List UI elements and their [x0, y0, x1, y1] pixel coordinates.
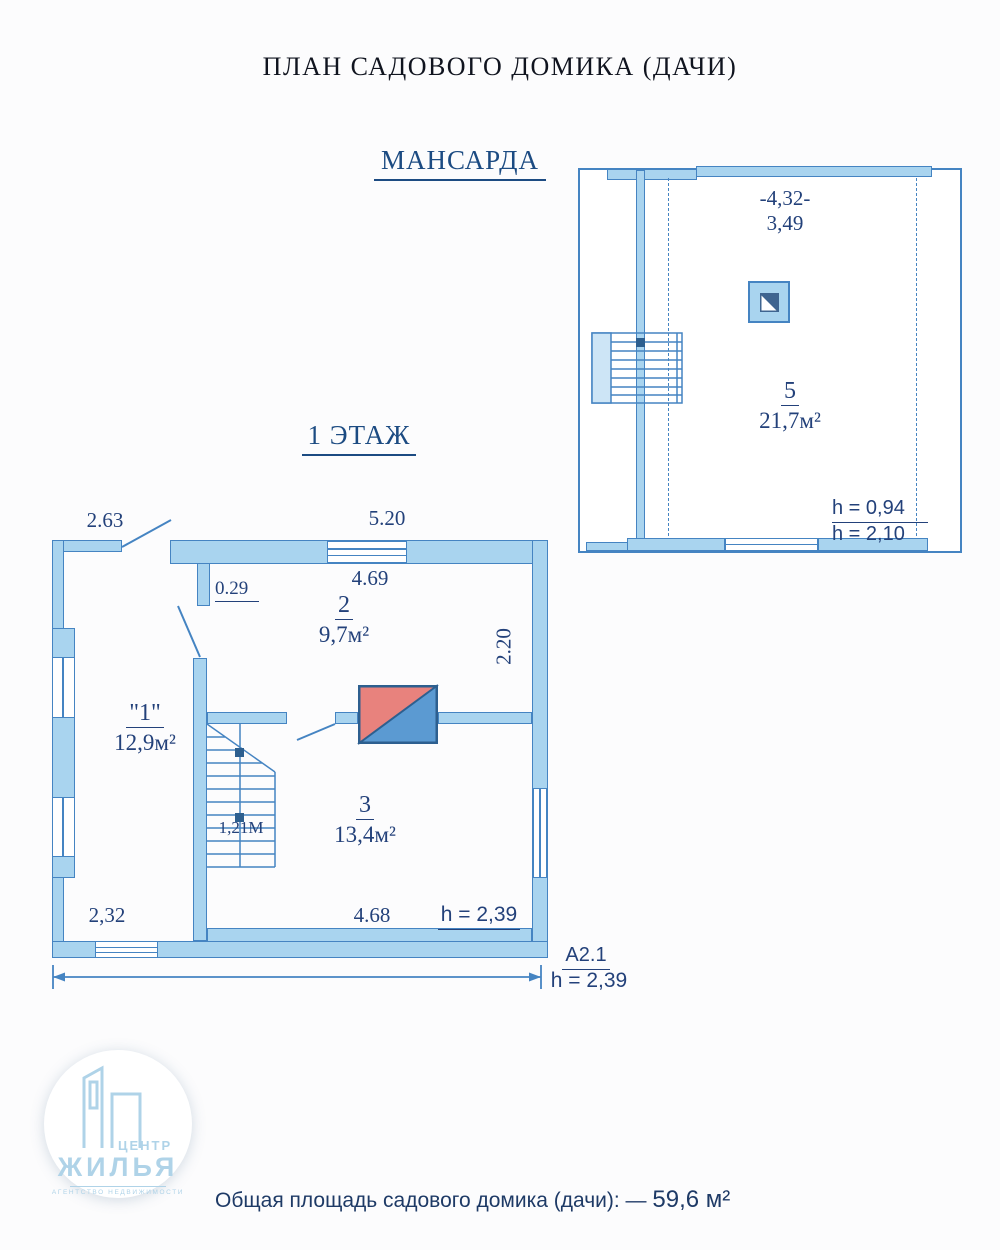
floor1-title: 1 ЭТАЖ: [302, 420, 416, 456]
dimension: 4.69: [338, 566, 402, 591]
door-swing-line: [178, 606, 200, 657]
dimension: 1,21М: [212, 818, 270, 838]
room-number: "1": [126, 700, 164, 728]
room-area: 21,7м²: [738, 408, 842, 433]
room-label-5: 5 21,7м²: [738, 378, 842, 434]
logo-line-sub: АГЕНТСТВО НЕДВИЖИМОСТИ: [44, 1189, 192, 1196]
room-label-1: "1" 12,9м²: [103, 700, 187, 756]
total-area-value: 59,6 м²: [652, 1186, 730, 1213]
dimension: 2.20: [492, 616, 517, 678]
window: [725, 538, 818, 551]
room-area: 13,4м²: [323, 822, 407, 847]
roof-line-dashed: [916, 178, 917, 541]
page-title: ПЛАН САДОВОГО ДОМИКА (ДАЧИ): [0, 52, 1000, 82]
dimension: -4,32-: [733, 186, 837, 211]
stairs-icon: [207, 724, 275, 867]
stairs-icon: [591, 332, 683, 404]
dimension: 3,49: [733, 211, 837, 236]
logo-divider: [70, 1186, 166, 1187]
room-area: 12,9м²: [103, 730, 187, 755]
dimension: 4.68: [343, 903, 401, 928]
dimension: 2.63: [73, 508, 137, 533]
mansarda-title: МАНСАРДА: [374, 145, 546, 181]
height-note: h = 2,39: [548, 969, 630, 993]
room-number: 3: [356, 792, 374, 820]
arrowhead: [53, 973, 65, 982]
room-number: 5: [781, 378, 799, 406]
logo-line-top: ЦЕНТР: [118, 1138, 172, 1153]
total-area-note: Общая площадь садового домика (дачи): — …: [215, 1186, 730, 1214]
door-swing-line: [297, 724, 335, 740]
dimension: 0.29: [215, 578, 259, 602]
section-label: А2.1: [562, 944, 610, 970]
logo-line-main: ЖИЛЬЯ: [44, 1152, 192, 1183]
height-note: h = 0,94: [832, 497, 928, 523]
dimension-line: [53, 965, 541, 989]
arrowhead: [529, 973, 541, 982]
total-area-label: Общая площадь садового домика (дачи): —: [215, 1189, 647, 1212]
height-note: h = 2,39: [438, 903, 520, 930]
room-number: 2: [335, 592, 353, 620]
room-area: 9,7м²: [308, 622, 380, 647]
wall-segment: [696, 166, 932, 177]
newel-post: [636, 338, 645, 347]
agency-logo: ЦЕНТР ЖИЛЬЯ АГЕНТСТВО НЕДВИЖИМОСТИ: [44, 1050, 192, 1198]
room-label-3: 3 13,4м²: [323, 792, 407, 848]
chimney-icon: [748, 281, 790, 323]
floor-plan-document: ПЛАН САДОВОГО ДОМИКА (ДАЧИ) МАНСАРДА: [0, 0, 1000, 1250]
dimension: 2,32: [78, 903, 136, 928]
wall-segment: [627, 538, 725, 551]
dimension: 5.20: [355, 506, 419, 531]
newel-post: [235, 748, 244, 757]
wall-segment: [607, 169, 697, 180]
room-label-2: 2 9,7м²: [308, 592, 380, 648]
height-note: h = 2,10: [832, 523, 928, 546]
